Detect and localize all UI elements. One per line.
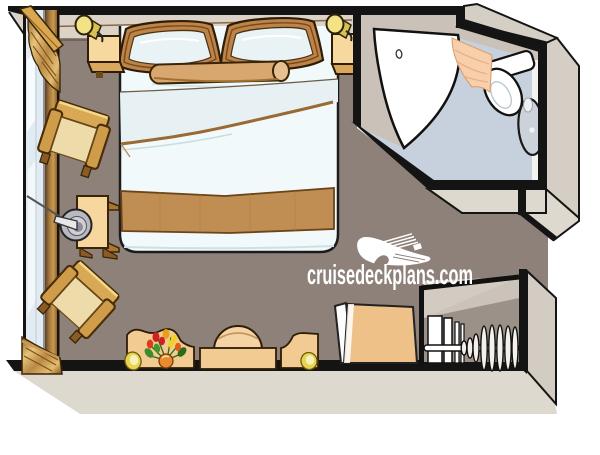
svg-text:cruisedeckplans.com: cruisedeckplans.com (307, 259, 473, 290)
